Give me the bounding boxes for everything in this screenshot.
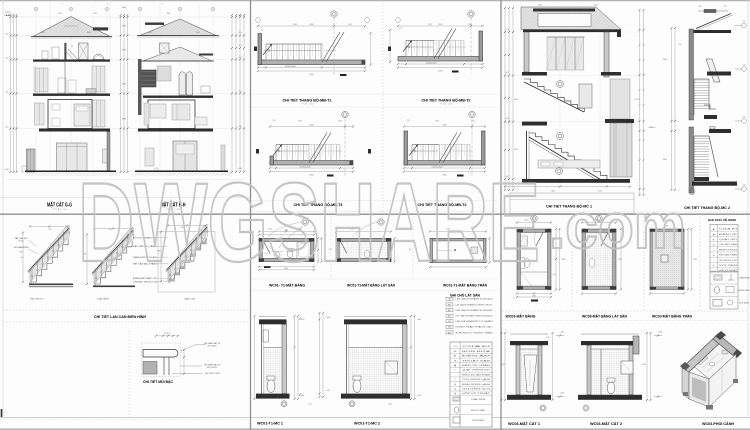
svg-text:MẶT CẮT: MẶT CẮT: [185, 298, 197, 301]
svg-text:▤: ▤: [454, 392, 456, 395]
svg-text:1100: 1100: [678, 44, 682, 46]
svg-text:+3.0: +3.0: [742, 117, 745, 119]
svg-text:LP1: LP1: [448, 299, 451, 301]
svg-text:900: 900: [309, 404, 312, 406]
svg-text:+3.6: +3.6: [505, 118, 509, 120]
svg-text:LP2: LP2: [448, 321, 451, 323]
svg-text:3200: 3200: [693, 259, 697, 261]
svg-text:WC03-MẶT BẰNG: WC03-MẶT BẰNG: [506, 314, 536, 319]
svg-text:⊕: ⊕: [713, 254, 715, 257]
svg-text:▤: ▤: [713, 238, 715, 241]
svg-text:WC01-T1-MC 2: WC01-T1-MC 2: [354, 422, 380, 426]
svg-text:+6.9: +6.9: [5, 58, 9, 60]
svg-text:GHI CHÚ VỆ SINH: GHI CHÚ VỆ SINH: [708, 217, 736, 222]
svg-text:WC03-MẶT CẮT 1: WC03-MẶT CẮT 1: [508, 421, 540, 426]
svg-text:900: 900: [20, 252, 23, 254]
svg-text:3300: 3300: [122, 26, 126, 28]
svg-text:150: 150: [399, 28, 402, 30]
svg-text:+3.6: +3.6: [5, 92, 9, 94]
svg-text:12: 12: [71, 46, 73, 48]
svg-text:GƯƠNG SOI: GƯƠNG SOI: [719, 260, 738, 262]
svg-text:3300: 3300: [642, 364, 646, 366]
svg-text:CHI TIẾT THANG BỘ-MB-T2: CHI TIẾT THANG BỘ-MB-T2: [422, 98, 471, 103]
svg-text:17x176: 17x176: [634, 99, 640, 101]
svg-text:3600: 3600: [122, 7, 126, 9]
svg-text:+9.9: +9.9: [5, 34, 9, 36]
svg-text:25 15 25: 25 15 25: [164, 333, 170, 335]
svg-text:▢: ▢: [713, 269, 715, 272]
svg-text:2600: 2600: [310, 125, 314, 127]
svg-text:DWGSHARE: DWGSHARE: [78, 160, 540, 285]
svg-text:3300: 3300: [122, 50, 126, 52]
svg-text:1400: 1400: [468, 24, 472, 26]
svg-text:GƯƠNG SOI: GƯƠNG SOI: [462, 389, 492, 391]
svg-text:+3.60: +3.60: [560, 332, 564, 334]
svg-text:+3.60: +3.60: [300, 319, 304, 321]
svg-text:3600: 3600: [122, 84, 126, 86]
svg-text:600: 600: [547, 337, 550, 339]
svg-text:2600: 2600: [438, 24, 442, 26]
svg-text:+9.9: +9.9: [238, 32, 242, 34]
svg-text:600: 600: [699, 6, 702, 8]
svg-text:1100: 1100: [388, 404, 392, 406]
svg-text:▣: ▣: [454, 364, 456, 367]
svg-text:900: 900: [21, 257, 24, 259]
svg-text:WC03-PHỐI CẢNH: WC03-PHỐI CẢNH: [702, 421, 735, 426]
svg-text:▣: ▣: [713, 228, 715, 231]
svg-text:+3.60: +3.60: [326, 317, 330, 319]
svg-text:+3.0: +3.0: [742, 65, 745, 67]
svg-text:.com: .com: [549, 190, 686, 262]
svg-text:+3.0: +3.0: [742, 21, 745, 23]
svg-text:+8.2: +8.2: [238, 45, 242, 47]
svg-text:3600: 3600: [514, 149, 518, 151]
svg-text:±0.00: ±0.00: [560, 393, 564, 395]
svg-text:1450: 1450: [594, 5, 598, 7]
svg-text:+6.9: +6.9: [505, 72, 509, 74]
svg-text:+12.675: +12.675: [5, 12, 12, 14]
svg-text:+3.60: +3.60: [658, 332, 662, 334]
svg-text:1400: 1400: [348, 24, 352, 26]
svg-text:150: 150: [261, 30, 264, 32]
svg-text:2600: 2600: [428, 24, 432, 26]
svg-text:CL1: CL1: [453, 346, 456, 348]
svg-text:●: ●: [454, 370, 455, 372]
svg-text:150: 150: [407, 120, 410, 122]
svg-text:2900: 2900: [310, 74, 314, 76]
svg-text:150: 150: [273, 120, 276, 122]
svg-text:260: 260: [49, 229, 52, 231]
svg-text:3600: 3600: [663, 159, 667, 161]
svg-text:+9.9: +9.9: [505, 29, 509, 31]
svg-text:2600: 2600: [298, 121, 302, 123]
svg-text:CHI TIẾT MŨI BẬC: CHI TIẾT MŨI BẬC: [143, 379, 173, 384]
svg-text:1500: 1500: [532, 296, 536, 298]
svg-text:TỶ LỆ 1 : 50: TỶ LỆ 1 : 50: [53, 208, 67, 211]
svg-text:1: 1: [62, 4, 63, 6]
svg-text:3300: 3300: [514, 99, 518, 101]
svg-text:SP1: SP1: [448, 304, 451, 306]
svg-text:+6.9: +6.9: [238, 57, 242, 59]
svg-text:3450: 3450: [87, 32, 91, 34]
svg-text:2850: 2850: [538, 5, 542, 7]
svg-text:2600: 2600: [310, 24, 314, 26]
svg-text:900: 900: [553, 274, 556, 276]
svg-text:CHI TIẾT THANG BỘ-MB-T1: CHI TIẾT THANG BỘ-MB-T1: [283, 98, 332, 103]
svg-text:+3.0: +3.0: [742, 185, 745, 187]
svg-text:MẶT CẮT G-G: MẶT CẮT G-G: [47, 201, 72, 209]
svg-text:2900: 2900: [438, 70, 442, 72]
svg-text:-0.45: -0.45: [4, 169, 8, 171]
svg-text:10x260=2600: 10x260=2600: [285, 66, 296, 68]
svg-text:2600: 2600: [443, 125, 447, 127]
svg-text:CHI TIẾT THANG BỘ-MC 2: CHI TIẾT THANG BỘ-MC 2: [684, 205, 730, 210]
svg-text:TAY VỊN GỖ: TAY VỊN GỖ: [15, 237, 29, 240]
svg-text:SP2: SP2: [448, 327, 451, 329]
svg-text:CHI TIẾT LAN CAN ĐIỂN HÌNH: CHI TIẾT LAN CAN ĐIỂN HÌNH: [94, 314, 146, 319]
svg-text:+3.6: +3.6: [238, 91, 242, 93]
svg-text:MẶT BÊN: MẶT BÊN: [98, 298, 110, 301]
svg-text:THANG 1: THANG 1: [648, 126, 655, 129]
svg-text:○: ○: [454, 374, 455, 376]
svg-text:±0.00: ±0.00: [326, 390, 330, 392]
svg-text:50x100: 50x100: [18, 241, 23, 243]
svg-text:±0.00: ±0.00: [417, 395, 421, 397]
svg-text:3450: 3450: [196, 32, 200, 34]
svg-text:3450: 3450: [41, 32, 45, 34]
svg-text:+12.1: +12.1: [238, 15, 243, 17]
svg-text:1200: 1200: [166, 13, 170, 15]
svg-text:3450: 3450: [148, 32, 152, 34]
svg-text:⊞: ⊞: [713, 243, 715, 246]
svg-text:WC03-MẶT BẰNG TRẦN: WC03-MẶT BẰNG TRẦN: [652, 314, 693, 319]
svg-text:2600: 2600: [435, 121, 439, 123]
svg-text:1100: 1100: [471, 121, 475, 123]
svg-text:900: 900: [94, 13, 97, 15]
svg-text:3900: 3900: [122, 119, 126, 121]
svg-text:3300: 3300: [663, 59, 667, 61]
svg-text:1200: 1200: [58, 13, 62, 15]
svg-text:2: 2: [108, 4, 109, 6]
svg-text:10x260=2600: 10x260=2600: [426, 62, 437, 64]
svg-text:2600: 2600: [293, 24, 297, 26]
svg-text:±0.00: ±0.00: [300, 395, 304, 397]
svg-text:1200: 1200: [338, 121, 342, 123]
svg-text:WC03-MẶT BẰNG LÁT SÀN: WC03-MẶT BẰNG LÁT SÀN: [582, 314, 628, 319]
svg-text:GHI CHÚ LÁT SÀN: GHI CHÚ LÁT SÀN: [450, 293, 481, 298]
svg-text:3300: 3300: [501, 364, 505, 366]
svg-text:WC03-MẶT CẮT 2: WC03-MẶT CẮT 2: [590, 421, 622, 426]
svg-text:◉: ◉: [713, 233, 715, 236]
svg-text:900: 900: [724, 6, 727, 8]
svg-text:+3.60: +3.60: [417, 319, 421, 321]
svg-text:MẶT TRƯỚC: MẶT TRƯỚC: [31, 298, 45, 301]
svg-text:3: 3: [162, 4, 163, 6]
svg-text:WC01-T1-MC 1: WC01-T1-MC 1: [257, 422, 283, 426]
svg-text:+0.0: +0.0: [238, 126, 242, 128]
svg-text:+0.0: +0.0: [5, 127, 9, 129]
